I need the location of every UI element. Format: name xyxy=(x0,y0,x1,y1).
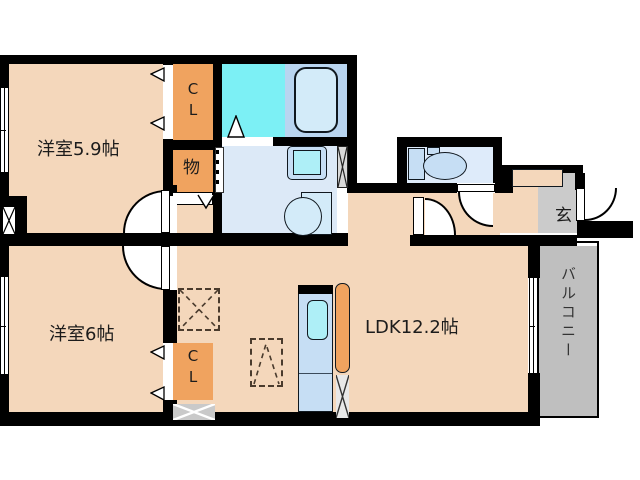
toilet-bowl xyxy=(423,152,467,180)
ldk-label: LDK12.2帖 xyxy=(365,313,459,339)
closet-door-arrow-icon xyxy=(150,386,166,401)
wall-hall-south xyxy=(410,235,577,246)
window-sash xyxy=(533,278,534,326)
wall-toilet-connector xyxy=(348,183,397,193)
ldk-floor xyxy=(177,246,528,412)
pipe-space-left xyxy=(2,206,16,235)
kitchen-counter-cap xyxy=(298,285,333,294)
window-sash xyxy=(4,88,5,130)
bedroom2-window xyxy=(0,277,9,374)
window-sash xyxy=(533,326,534,374)
closet-bottom-label: C L xyxy=(178,346,208,388)
balcony-sliding-window xyxy=(529,278,538,373)
window-sash xyxy=(4,130,5,172)
wall-left-a xyxy=(0,55,9,88)
closet-top-label: C L xyxy=(178,79,208,121)
wall-bottom xyxy=(0,412,540,426)
wall-ldk-east-a xyxy=(528,238,540,278)
storage-label: 物 xyxy=(183,153,200,178)
window-sash xyxy=(4,277,5,326)
balcony-label: バルコニー xyxy=(558,266,579,406)
entrance-hall-floor2 xyxy=(500,193,538,233)
bedroom1-door-leaf xyxy=(161,190,170,233)
x-hatch-icon xyxy=(173,404,215,420)
wall-bath-washroom xyxy=(273,137,347,146)
toilet-door-leaf xyxy=(457,184,495,192)
wall-top xyxy=(0,55,353,64)
wall-room-divider xyxy=(9,233,213,246)
refrigerator-space xyxy=(178,288,220,331)
floor-plan: 洋室5.9帖 洋室6帖 LDK12.2帖 C L C L 物 玄 バルコニー xyxy=(0,0,640,480)
closet-door-arrow-icon xyxy=(150,345,166,360)
entrance-door-leaf xyxy=(576,188,585,221)
kitchen-sink xyxy=(307,300,328,340)
bedroom2-label: 洋室6帖 xyxy=(49,320,114,346)
appliance-space xyxy=(250,338,283,387)
hallway-passage-floor xyxy=(348,235,410,246)
bathroom-door-arrow-icon xyxy=(227,115,245,138)
entrance-door-swing xyxy=(585,188,617,221)
pipe-space-kitchen xyxy=(336,375,349,418)
wall-ldk-east-b xyxy=(528,373,540,412)
washroom-accordion-door xyxy=(215,147,224,193)
vent-window-closet-bottom xyxy=(173,404,215,420)
closet-door-arrow-icon xyxy=(150,116,166,131)
x-hatch-icon xyxy=(336,375,349,418)
x-hatch-icon xyxy=(338,147,347,187)
x-hatch-icon xyxy=(3,207,15,234)
accordion-fold-marks xyxy=(216,150,219,190)
laundry-pan-inner xyxy=(293,150,321,175)
bedroom1-label: 洋室5.9帖 xyxy=(37,135,120,161)
closet-door-arrow-icon xyxy=(150,67,166,82)
storage-door-arrow-icon xyxy=(196,194,216,210)
entrance-label: 玄 xyxy=(555,201,572,226)
pipe-space-washroom xyxy=(337,146,348,188)
wall-bathblock-east xyxy=(347,55,357,193)
wall-ldk-west xyxy=(163,290,177,332)
wall-entrance-south xyxy=(577,221,633,238)
bedroom1-window xyxy=(0,88,9,172)
washbasin-bowl xyxy=(284,197,322,236)
shoe-cabinet xyxy=(512,169,563,187)
ldk-door-leaf xyxy=(413,197,424,235)
bathroom-door-threshold xyxy=(222,137,273,146)
dashed-triangle-icon xyxy=(252,340,281,385)
dashed-x-icon xyxy=(180,290,218,329)
kitchen-counter-divider xyxy=(299,373,332,374)
bathtub xyxy=(294,67,338,133)
kitchen-partition-counter xyxy=(335,283,350,373)
bedroom2-door-leaf xyxy=(161,246,170,290)
window-sash xyxy=(4,326,5,375)
